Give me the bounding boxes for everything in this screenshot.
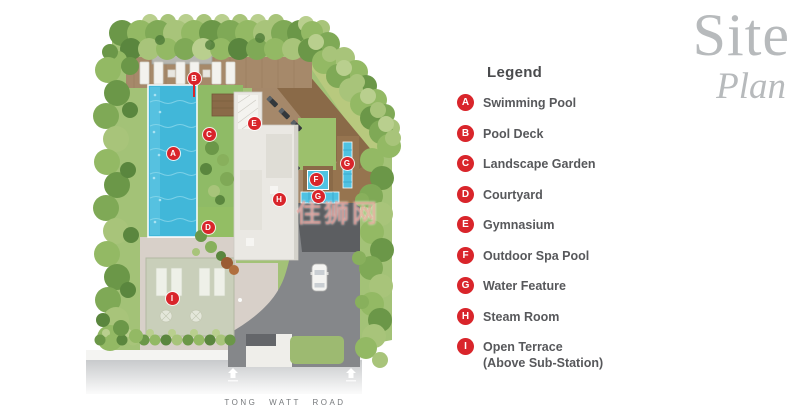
legend-item-i: IOpen Terrace(Above Sub-Station)	[457, 338, 667, 371]
marker-stem	[193, 84, 195, 97]
map-marker-b: B	[188, 72, 201, 85]
legend-badge: E	[457, 216, 474, 233]
legend-heading: Legend	[487, 64, 667, 81]
map-marker-i: I	[166, 292, 179, 305]
legend-label: Pool Deck	[483, 125, 543, 142]
legend-label: Open Terrace(Above Sub-Station)	[483, 338, 603, 371]
watermark: 住狮网	[296, 194, 380, 230]
map-marker-a: A	[167, 147, 180, 160]
legend-item-d: DCourtyard	[457, 186, 667, 217]
legend-panel: Legend ASwimming PoolBPool DeckCLandscap…	[457, 64, 667, 371]
map-marker-d: D	[202, 221, 215, 234]
map-marker-g: G	[341, 157, 354, 170]
legend-badge: B	[457, 125, 474, 142]
legend-item-a: ASwimming Pool	[457, 94, 667, 125]
legend-label: Steam Room	[483, 308, 559, 325]
legend-label: Courtyard	[483, 186, 543, 203]
legend-item-h: HSteam Room	[457, 308, 667, 339]
legend-label: Gymnasium	[483, 216, 555, 233]
legend-badge: A	[457, 94, 474, 111]
legend-label-line2: (Above Sub-Station)	[483, 355, 603, 371]
page-title-main: Site	[693, 2, 790, 68]
page-title-sub: Plan	[693, 68, 790, 106]
road-name-label: TONG WATT ROAD	[150, 398, 420, 407]
map-marker-h: H	[273, 193, 286, 206]
legend-list: ASwimming PoolBPool DeckCLandscape Garde…	[457, 94, 667, 371]
legend-item-c: CLandscape Garden	[457, 155, 667, 186]
map-marker-f: F	[310, 173, 323, 186]
legend-label: Swimming Pool	[483, 94, 576, 111]
legend-badge: F	[457, 247, 474, 264]
legend-badge: I	[457, 338, 474, 355]
legend-badge: C	[457, 155, 474, 172]
legend-item-b: BPool Deck	[457, 125, 667, 156]
brochure-page: ABCDEFGGHI 住狮网 TONG WATT ROAD Legend ASw…	[0, 0, 800, 417]
legend-item-f: FOutdoor Spa Pool	[457, 247, 667, 278]
legend-badge: H	[457, 308, 474, 325]
legend-badge: D	[457, 186, 474, 203]
legend-badge: G	[457, 277, 474, 294]
map-marker-e: E	[248, 117, 261, 130]
legend-label: Outdoor Spa Pool	[483, 247, 589, 264]
map-marker-c: C	[203, 128, 216, 141]
legend-item-e: EGymnasium	[457, 216, 667, 247]
site-plan: ABCDEFGGHI 住狮网 TONG WATT ROAD	[0, 0, 440, 417]
legend-item-g: GWater Feature	[457, 277, 667, 308]
legend-label: Water Feature	[483, 277, 566, 294]
page-title: Site Plan	[693, 2, 790, 106]
legend-label: Landscape Garden	[483, 155, 596, 172]
